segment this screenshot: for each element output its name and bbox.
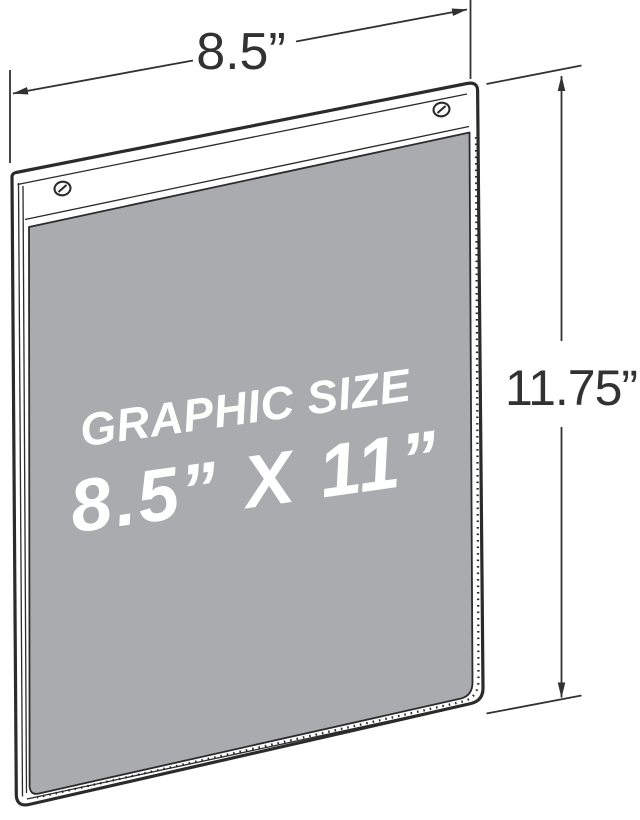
height-extension-line-top	[487, 66, 582, 85]
height-extension-line-bottom	[487, 696, 582, 714]
height-dimension: 11.75”	[487, 66, 638, 714]
width-dimension-line-left	[13, 61, 193, 94]
sign-holder-frame: GRAPHIC SIZE 8.5” X 11”	[12, 83, 483, 805]
sign-holder-dimension-diagram: GRAPHIC SIZE 8.5” X 11” 8.5” 11.75”	[0, 0, 640, 820]
height-dimension-label: 11.75”	[505, 360, 637, 416]
product-diagram-canvas: GRAPHIC SIZE 8.5” X 11” 8.5” 11.75”	[0, 0, 640, 820]
width-dimension-line-right	[296, 10, 467, 42]
width-dimension-label: 8.5”	[196, 23, 286, 81]
